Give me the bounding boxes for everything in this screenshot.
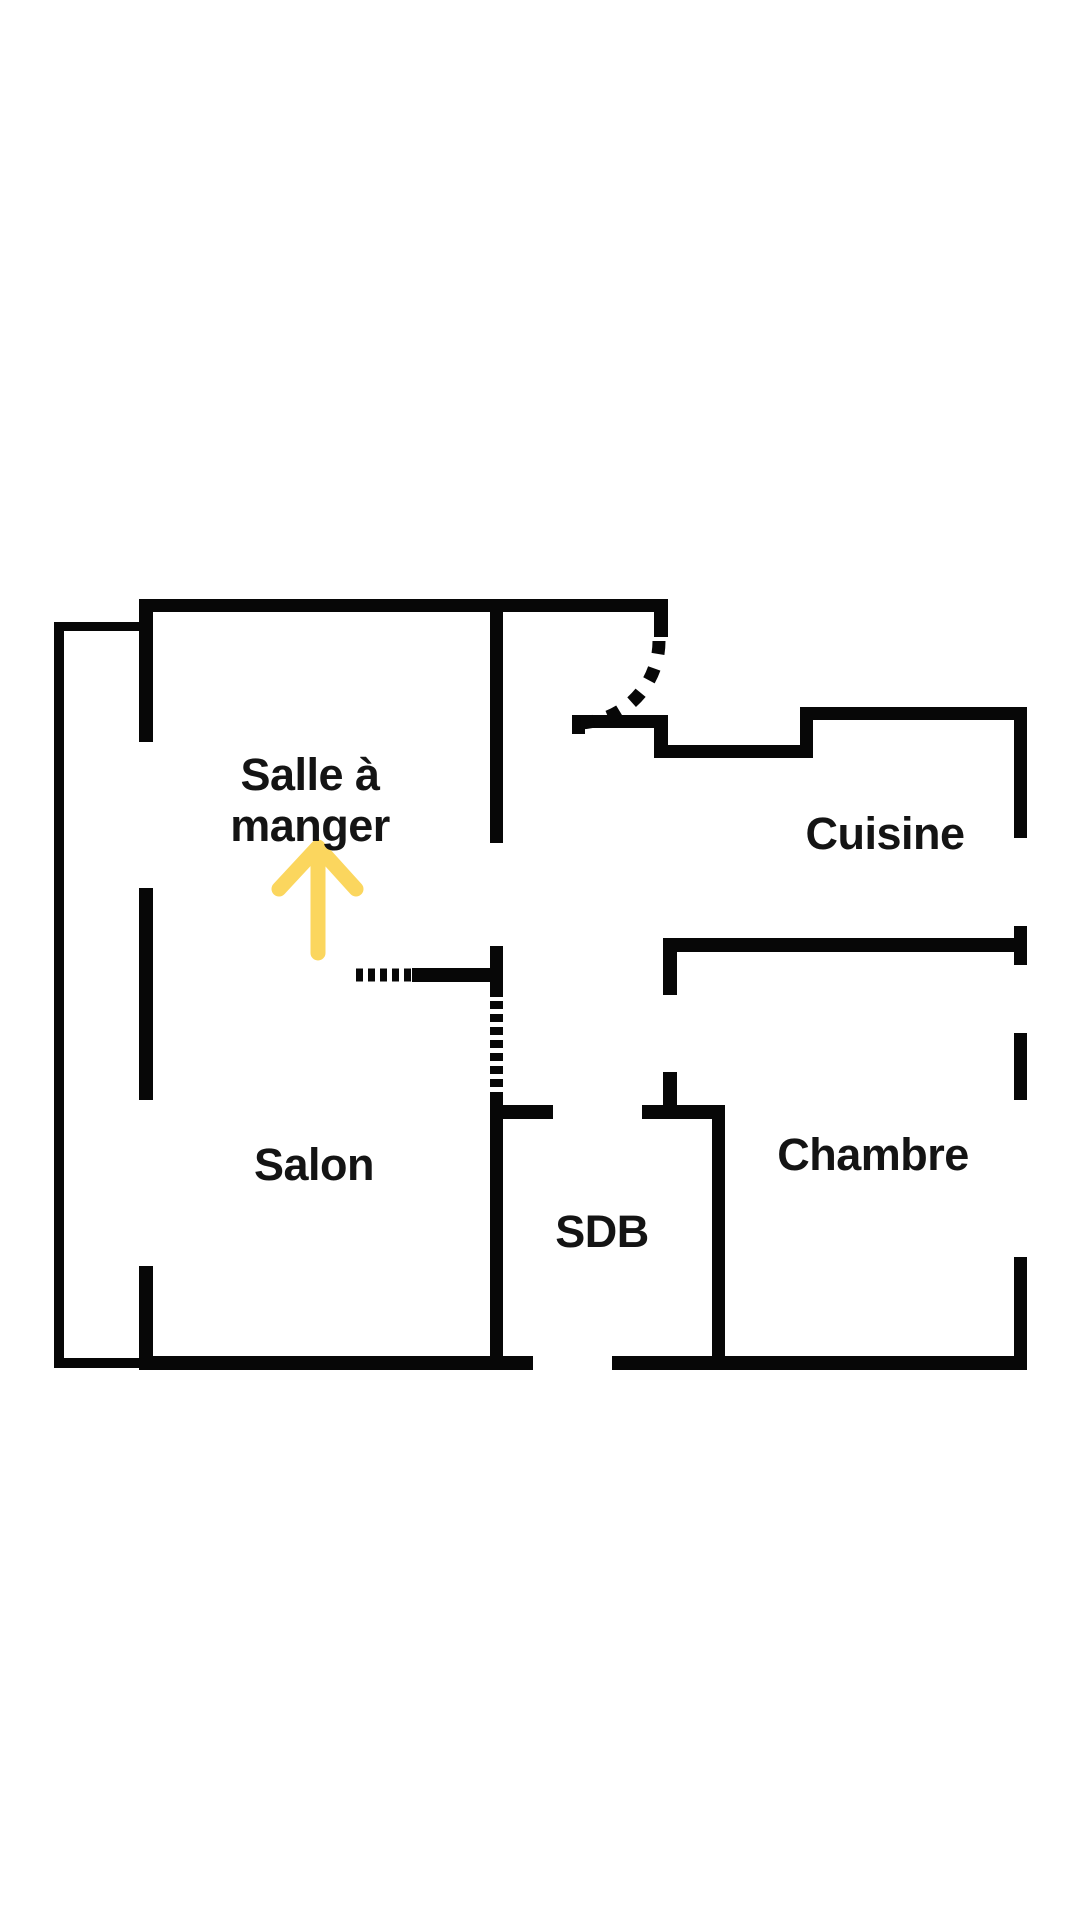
wall-outer-right-b xyxy=(1014,1033,1027,1100)
entry-door-arc xyxy=(577,641,659,723)
wall-outer-left-top-link xyxy=(54,622,139,631)
room-label-bathroom: SDB xyxy=(442,1206,762,1257)
wall-left-inner-middle xyxy=(139,888,153,1100)
bedroom-door-jamb-bottom xyxy=(663,1072,677,1105)
room-label-dining-line2: manger xyxy=(230,800,390,851)
floor-plan: Salle àmanger Cuisine Salon SDB Chambre xyxy=(0,0,1080,1920)
wall-living-partition-post xyxy=(490,946,503,997)
wall-entry-lower xyxy=(654,745,813,758)
wall-living-partition xyxy=(412,968,503,982)
wall-bottom-left xyxy=(139,1356,533,1370)
room-label-kitchen: Cuisine xyxy=(725,808,1045,859)
wall-kitchen-bedroom xyxy=(663,938,1015,952)
wall-bathroom-top-right xyxy=(642,1105,725,1119)
door-openings xyxy=(356,641,659,1090)
wall-left-inner-lower xyxy=(139,1266,153,1356)
wall-kitchen-top xyxy=(800,707,1027,720)
up-arrow-icon xyxy=(279,847,356,953)
wall-left-inner-upper xyxy=(139,599,153,742)
wall-outer-right-c xyxy=(1014,1257,1027,1370)
floor-plan-drawing xyxy=(0,0,1080,1920)
room-label-dining: Salle àmanger xyxy=(150,749,470,851)
room-label-dining-line1: Salle à xyxy=(240,749,379,800)
wall-outer-right-stub xyxy=(1014,926,1027,965)
wall-outer-left xyxy=(54,622,64,1368)
entry-door-jamb-top xyxy=(654,612,668,637)
wall-bottom-right xyxy=(612,1356,1027,1370)
room-label-living: Salon xyxy=(154,1139,474,1190)
bedroom-door-jamb-top xyxy=(663,952,677,995)
wall-outer-left-bottom-link xyxy=(54,1358,143,1368)
wall-top xyxy=(139,599,668,612)
wall-dining-hall-divider xyxy=(490,612,503,843)
room-label-bedroom: Chambre xyxy=(713,1129,1033,1180)
